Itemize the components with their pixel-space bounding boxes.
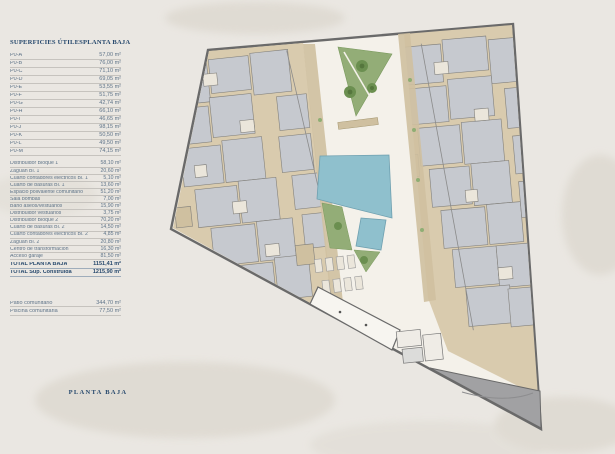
unit-label: P0-D xyxy=(10,77,23,83)
common-area: 3,75 m² xyxy=(100,211,121,216)
table-column-header: PLANTA BAJA xyxy=(83,40,130,47)
common-area: 5,10 m² xyxy=(100,176,121,181)
common-label: Cuarto de basuras Bl. 1 xyxy=(10,183,65,188)
plan-title: PLANTA BAJA xyxy=(52,389,144,396)
table-row: Zaguán Bl. 1 20,60 m² xyxy=(10,168,121,175)
table-row: P0-H 66,10 m² xyxy=(10,108,121,116)
table-row: Acceso garaje 81,50 m² xyxy=(10,253,121,260)
unit-label: P0-I xyxy=(10,117,20,123)
unit-area: 51,75 m² xyxy=(96,93,121,99)
unit-label: P0-H xyxy=(10,109,23,115)
total-area: 1151,41 m² xyxy=(90,262,121,268)
unit-area: 42,74 m² xyxy=(96,101,121,107)
common-label: Cuarto de basuras Bl. 2 xyxy=(10,225,65,230)
table-title: SUPERFICIES ÚTILES xyxy=(10,40,83,47)
table-row: Centro de transformación 16,30 m² xyxy=(10,246,121,253)
table-row: P0-A 57,00 m² xyxy=(10,52,121,60)
unit-label: P0-E xyxy=(10,85,22,91)
common-area: 14,50 m² xyxy=(98,225,121,230)
outdoor-list: Patio comunitario 344,70 m² Piscina comu… xyxy=(10,299,121,316)
common-area: 4,85 m² xyxy=(100,232,121,237)
common-label: Sala bombas xyxy=(10,197,40,202)
unit-label: P0-L xyxy=(10,141,22,147)
unit-label: P0-B xyxy=(10,61,22,67)
outdoor-area: 77,50 m² xyxy=(96,309,121,315)
unit-label: P0-A xyxy=(10,53,22,59)
unit-area: 50,50 m² xyxy=(96,133,121,139)
common-label: Acceso garaje xyxy=(10,254,43,259)
total-row: TOTAL Sup. Construida 1215,90 m² xyxy=(10,269,121,277)
unit-label: P0-K xyxy=(10,133,22,139)
totals-list: TOTAL PLANTA BAJA 1151,41 m² TOTAL Sup. … xyxy=(10,261,121,277)
unit-area: 53,55 m² xyxy=(96,85,121,91)
outdoor-label: Patio comunitario xyxy=(10,301,53,307)
total-area: 1215,90 m² xyxy=(90,270,121,276)
table-row: Espacio polivalente comunitario 51,20 m² xyxy=(10,189,121,196)
common-area-list: Distribuidor Bloque 1 58,10 m² Zaguán Bl… xyxy=(10,161,121,260)
outdoor-label: Piscina comunitaria xyxy=(10,309,58,315)
unit-area: 66,10 m² xyxy=(96,109,121,115)
common-label: Cuarto contadores eléctricos Bl. 1 xyxy=(10,176,88,181)
unit-label: P0-C xyxy=(10,69,23,75)
table-row: P0-K 50,50 m² xyxy=(10,132,121,140)
table-row: P0-B 76,00 m² xyxy=(10,60,121,68)
common-area: 70,20 m² xyxy=(98,218,121,223)
unit-area: 71,10 m² xyxy=(96,69,121,75)
unit-surface-list: P0-A 57,00 m² P0-B 76,00 m² P0-C 71,10 m… xyxy=(10,52,121,156)
common-label: Baño aseos/vestuarios xyxy=(10,204,62,209)
total-label: TOTAL Sup. Construida xyxy=(10,270,72,276)
total-row: TOTAL PLANTA BAJA 1151,41 m² xyxy=(10,261,121,269)
table-row: P0-D 69,05 m² xyxy=(10,76,121,84)
table-row: P0-L 49,50 m² xyxy=(10,140,121,148)
table-row: P0-G 42,74 m² xyxy=(10,100,121,108)
common-area: 51,20 m² xyxy=(98,190,121,195)
table-row: Distribuidor Bloque 1 58,10 m² xyxy=(10,161,121,168)
common-area: 20,60 m² xyxy=(98,169,121,174)
unit-area: 76,00 m² xyxy=(96,61,121,67)
table-row: P0-J 98,15 m² xyxy=(10,124,121,132)
common-area: 7,00 m² xyxy=(100,197,121,202)
common-label: Espacio polivalente comunitario xyxy=(10,190,83,195)
common-label: Distribuidor Bloque 2 xyxy=(10,218,58,223)
table-row: Cuarto contadores eléctricos Bl. 2 4,85 … xyxy=(10,232,121,239)
unit-area: 49,50 m² xyxy=(96,141,121,147)
table-row: Cuarto de basuras Bl. 1 13,60 m² xyxy=(10,182,121,189)
unit-area: 57,00 m² xyxy=(96,53,121,59)
table-row: P0-I 46,65 m² xyxy=(10,116,121,124)
table-row: P0-C 71,10 m² xyxy=(10,68,121,76)
unit-area: 74,15 m² xyxy=(96,149,121,155)
table-row: Patio comunitario 344,70 m² xyxy=(10,299,121,308)
common-area: 20,80 m² xyxy=(98,240,121,245)
total-label: TOTAL PLANTA BAJA xyxy=(10,262,67,268)
plan-sheet: SUPERFICIES ÚTILES PLANTA BAJA P0-A 57,0… xyxy=(0,0,615,454)
table-row: P0-M 74,15 m² xyxy=(10,148,121,156)
table-row: P0-F 51,75 m² xyxy=(10,92,121,100)
common-label: Distribuidor vestuarios xyxy=(10,211,61,216)
common-area: 16,30 m² xyxy=(98,247,121,252)
common-label: Centro de transformación xyxy=(10,247,69,252)
unit-label: P0-G xyxy=(10,101,23,107)
table-row: Piscina comunitaria 77,50 m² xyxy=(10,307,121,316)
common-label: Cuarto contadores eléctricos Bl. 2 xyxy=(10,232,88,237)
surfaces-table: SUPERFICIES ÚTILES PLANTA BAJA P0-A 57,0… xyxy=(10,40,121,316)
common-area: 58,10 m² xyxy=(98,161,121,166)
common-label: Zaguán Bl. 2 xyxy=(10,240,39,245)
outdoor-area: 344,70 m² xyxy=(93,301,121,307)
unit-area: 46,65 m² xyxy=(96,117,121,123)
unit-label: P0-F xyxy=(10,93,22,99)
common-label: Distribuidor Bloque 1 xyxy=(10,161,58,166)
common-area: 81,50 m² xyxy=(98,254,121,259)
unit-area: 69,05 m² xyxy=(96,77,121,83)
common-area: 13,60 m² xyxy=(98,183,121,188)
unit-label: P0-M xyxy=(10,149,23,155)
table-row: Cuarto contadores eléctricos Bl. 1 5,10 … xyxy=(10,175,121,182)
table-header: SUPERFICIES ÚTILES PLANTA BAJA xyxy=(10,40,121,47)
unit-label: P0-J xyxy=(10,125,21,131)
table-row: P0-E 53,55 m² xyxy=(10,84,121,92)
common-label: Zaguán Bl. 1 xyxy=(10,169,39,174)
common-area: 15,90 m² xyxy=(98,204,121,209)
unit-area: 98,15 m² xyxy=(96,125,121,131)
table-row: Zaguán Bl. 2 20,80 m² xyxy=(10,239,121,246)
